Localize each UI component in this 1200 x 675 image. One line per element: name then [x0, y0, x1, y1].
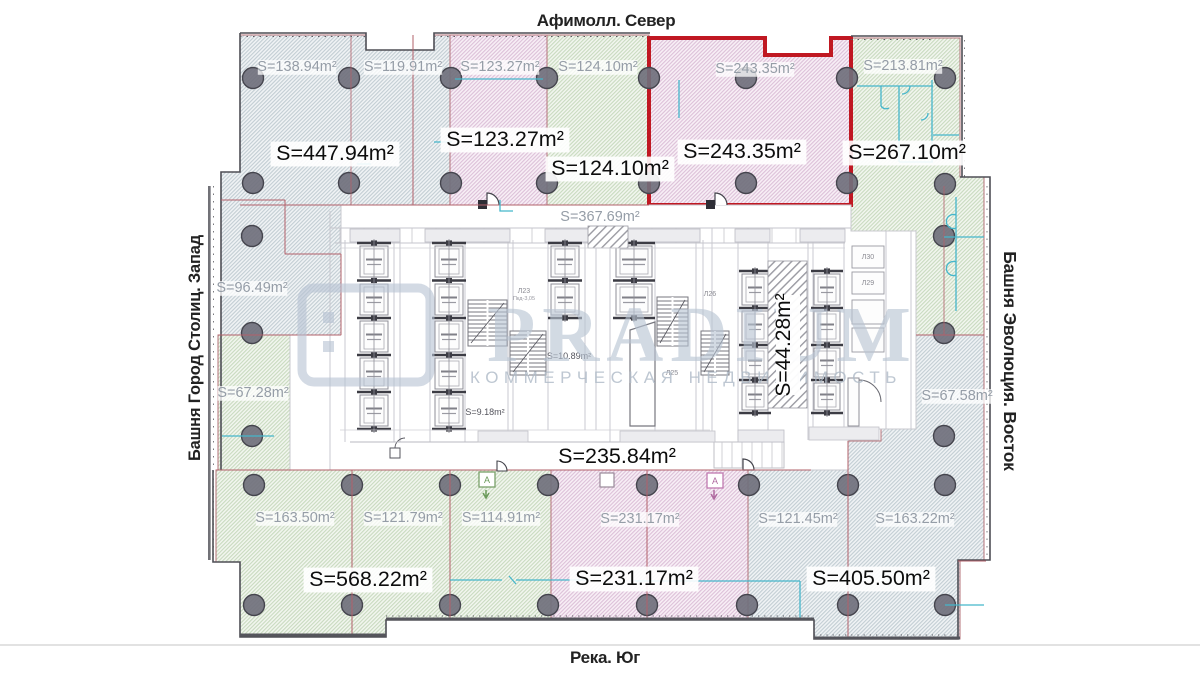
svg-text:S=213.81m²: S=213.81m² [863, 58, 943, 74]
svg-text:S=243.35m²: S=243.35m² [715, 61, 795, 77]
svg-text:А: А [712, 476, 718, 486]
svg-text:S=231.17m²: S=231.17m² [600, 511, 680, 527]
svg-text:КОММЕРЧЕСКАЯ НЕДВИЖИМОСТЬ: КОММЕРЧЕСКАЯ НЕДВИЖИМОСТЬ [470, 368, 902, 387]
svg-text:S=243.35m²: S=243.35m² [683, 139, 801, 163]
svg-text:S=163.50m²: S=163.50m² [255, 510, 335, 526]
svg-text:S=405.50m²: S=405.50m² [812, 566, 930, 590]
svg-text:S=96.49m²: S=96.49m² [216, 280, 288, 296]
svg-text:S=163.22m²: S=163.22m² [875, 511, 955, 527]
svg-text:PRADIUM: PRADIUM [487, 292, 918, 379]
svg-text:S=123.27m²: S=123.27m² [446, 127, 564, 151]
svg-text:S=67.28m²: S=67.28m² [217, 385, 289, 401]
svg-text:S=67.58m²: S=67.58m² [921, 388, 993, 404]
svg-text:S=124.10m²: S=124.10m² [551, 156, 669, 180]
svg-text:S=367.69m²: S=367.69m² [560, 209, 640, 225]
svg-text:S=138.94m²: S=138.94m² [257, 59, 337, 75]
svg-text:Л30: Л30 [862, 254, 874, 261]
svg-text:S=235.84m²: S=235.84m² [558, 444, 676, 468]
svg-text:S=121.79m²: S=121.79m² [363, 510, 443, 526]
svg-text:S=121.45m²: S=121.45m² [758, 511, 838, 527]
svg-text:S=124.10m²: S=124.10m² [558, 59, 638, 75]
svg-text:S=267.10m²: S=267.10m² [848, 140, 966, 164]
svg-text:Башня Эволюция. Восток: Башня Эволюция. Восток [1000, 251, 1020, 471]
svg-text:S=119.91m²: S=119.91m² [364, 59, 442, 75]
svg-text:Башня Город Столиц. Запад: Башня Город Столиц. Запад [186, 234, 204, 461]
svg-text:S=568.22m²: S=568.22m² [309, 567, 427, 591]
svg-text:Л29: Л29 [862, 280, 874, 287]
svg-text:А: А [484, 475, 490, 485]
svg-text:S=114.91m²: S=114.91m² [462, 510, 540, 526]
svg-text:S=44.28m²: S=44.28m² [772, 293, 795, 396]
svg-text:S=9.18m²: S=9.18m² [465, 407, 504, 417]
svg-text:S=447.94m²: S=447.94m² [276, 141, 394, 165]
svg-text:S=123.27m²: S=123.27m² [460, 59, 540, 75]
svg-text:Афимолл. Север: Афимолл. Север [537, 11, 676, 30]
svg-text:S=231.17m²: S=231.17m² [575, 566, 693, 590]
svg-text:Река. Юг: Река. Юг [570, 648, 640, 667]
